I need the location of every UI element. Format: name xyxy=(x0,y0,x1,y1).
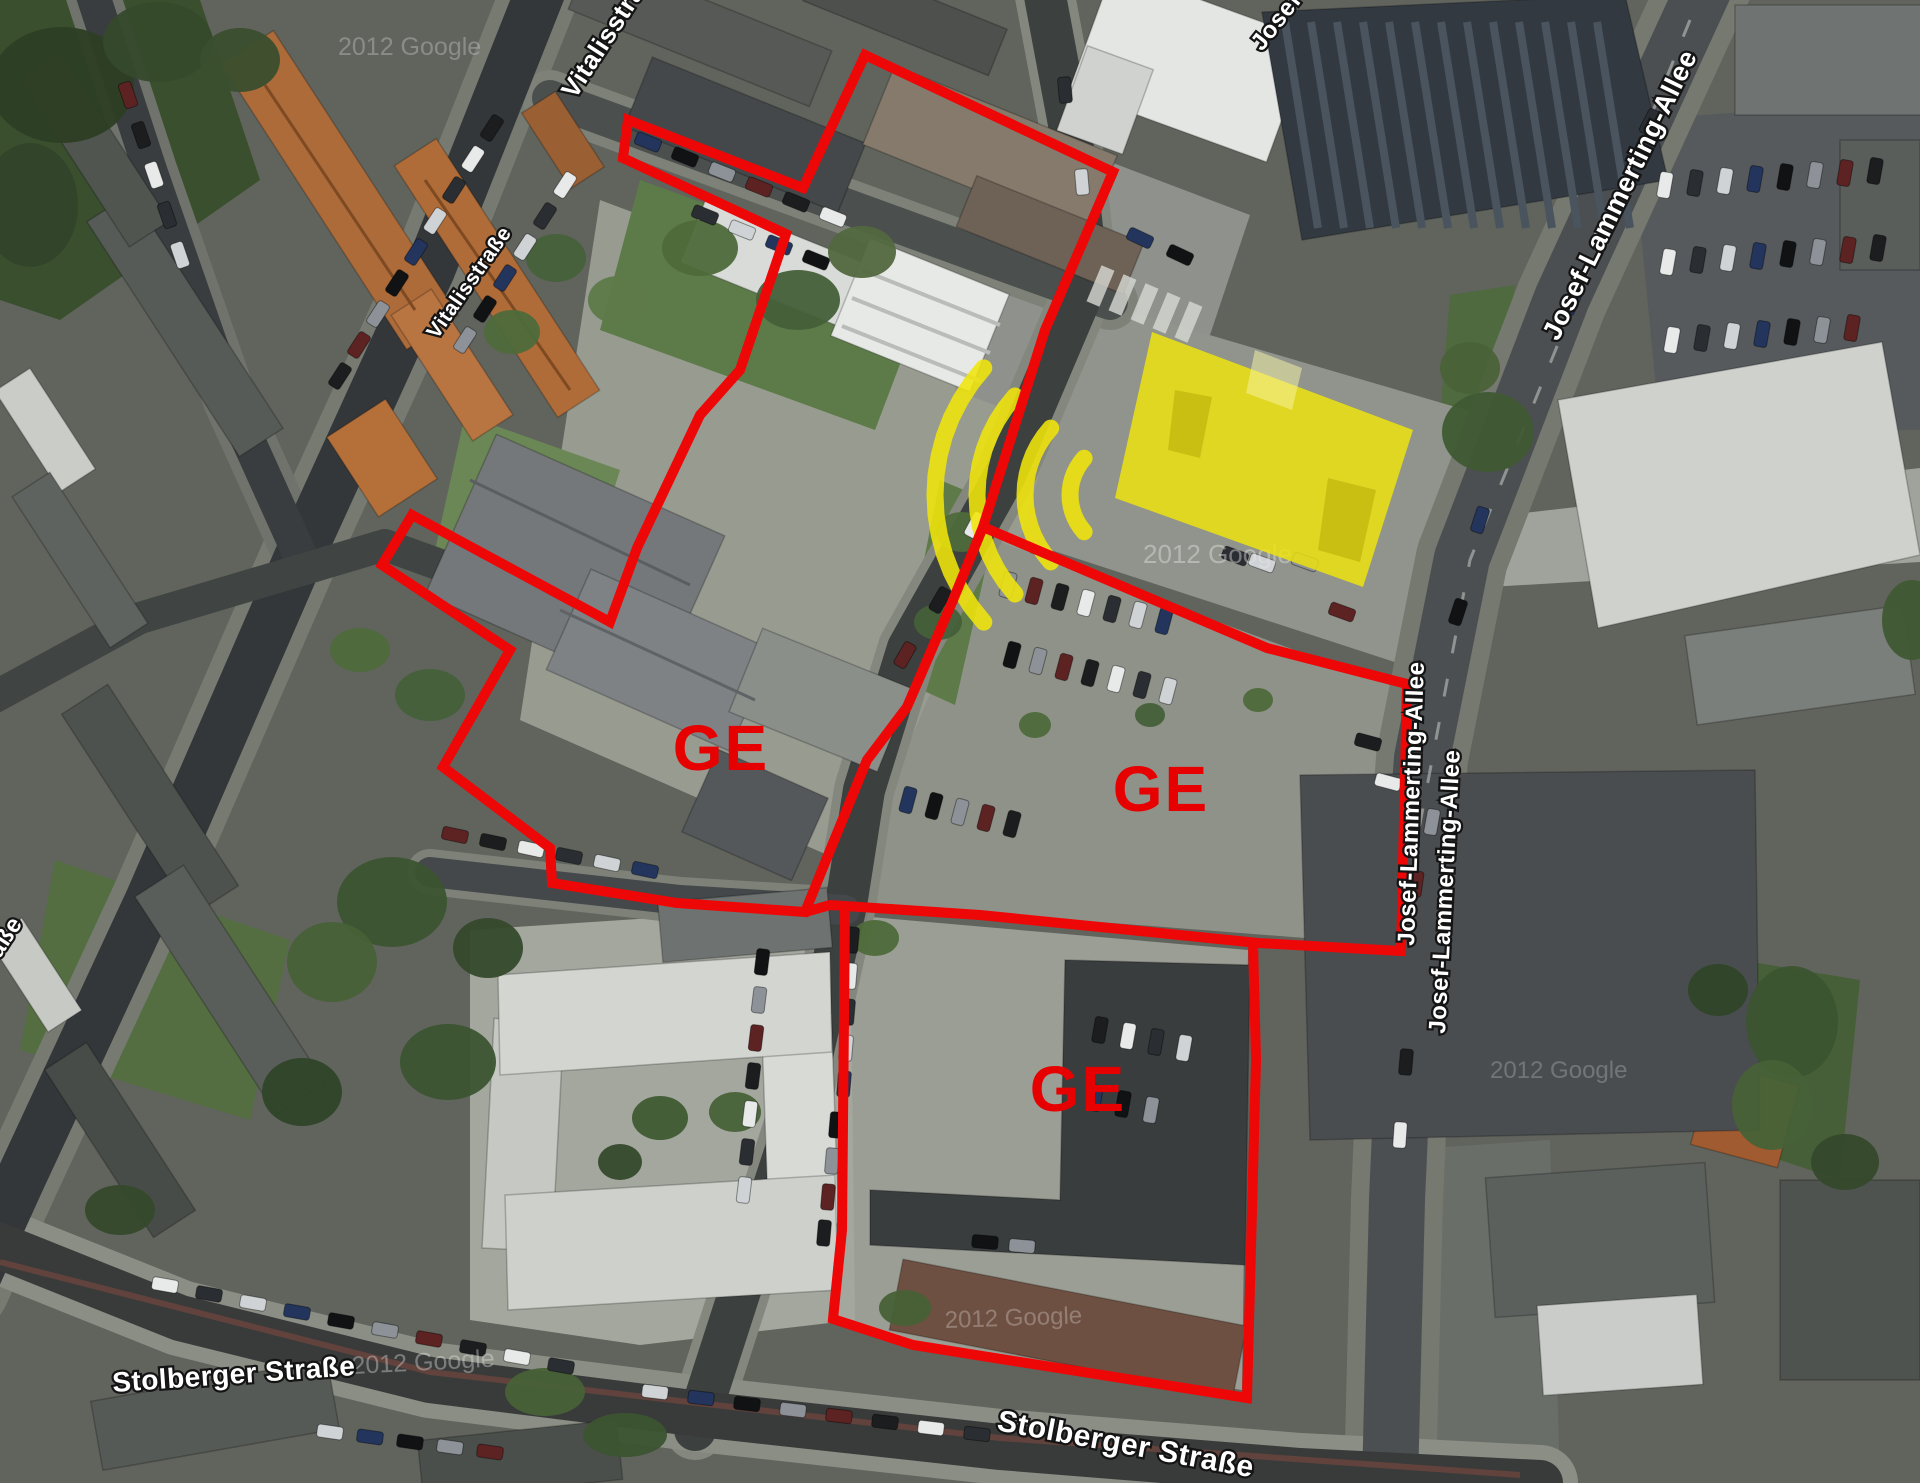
zone-label-ge-south: GE xyxy=(1030,1053,1126,1125)
tree xyxy=(262,1058,342,1126)
car xyxy=(733,1396,760,1412)
car xyxy=(736,1176,752,1203)
tree xyxy=(1243,688,1273,712)
tree xyxy=(1019,712,1051,738)
car xyxy=(820,1183,835,1210)
car xyxy=(917,1420,944,1436)
tree xyxy=(200,28,280,92)
building xyxy=(1780,1180,1920,1380)
tree xyxy=(400,1024,496,1100)
tree xyxy=(1746,966,1838,1078)
car xyxy=(748,1024,764,1051)
tree xyxy=(395,669,465,721)
tree xyxy=(662,220,738,276)
car xyxy=(641,1384,668,1400)
tree xyxy=(879,1290,931,1326)
car xyxy=(816,1219,831,1246)
map-canvas: 2012 Google2012 Google2012 Google2012 Go… xyxy=(0,0,1920,1483)
tree xyxy=(1135,703,1165,727)
car xyxy=(825,1408,852,1424)
tree xyxy=(85,1185,155,1235)
tree xyxy=(103,2,213,82)
tree xyxy=(1442,392,1534,472)
car xyxy=(824,1147,839,1174)
car xyxy=(1074,168,1089,195)
car xyxy=(751,986,767,1013)
tree xyxy=(505,1368,585,1416)
zone-label-ge-west: GE xyxy=(673,712,769,784)
car xyxy=(1008,1238,1035,1253)
car xyxy=(1393,1122,1408,1149)
building xyxy=(1485,1162,1714,1317)
tree xyxy=(1811,1134,1879,1190)
google-watermark: 2012 Google xyxy=(944,1302,1082,1334)
satellite-background xyxy=(0,0,1920,1483)
google-watermark: 2012 Google xyxy=(1490,1057,1627,1084)
tree xyxy=(588,276,648,324)
building xyxy=(505,1175,838,1310)
tree xyxy=(1732,1060,1812,1150)
building xyxy=(1735,5,1920,115)
car xyxy=(739,1138,755,1165)
car xyxy=(754,948,770,975)
tree xyxy=(1440,342,1500,394)
car xyxy=(1398,1048,1413,1075)
tree xyxy=(287,922,377,1002)
car xyxy=(1057,76,1072,103)
tree xyxy=(484,310,540,354)
car xyxy=(963,1426,990,1442)
tree xyxy=(1688,964,1748,1016)
tree xyxy=(583,1413,667,1457)
tree xyxy=(632,1096,688,1140)
car xyxy=(779,1402,806,1418)
building xyxy=(1537,1295,1703,1396)
google-watermark: 2012 Google xyxy=(338,33,481,61)
aerial-map: 2012 Google2012 Google2012 Google2012 Go… xyxy=(0,0,1920,1483)
car xyxy=(971,1234,998,1249)
car xyxy=(871,1414,898,1430)
tree xyxy=(453,918,523,978)
zone-label-ge-center: GE xyxy=(1113,753,1209,825)
building xyxy=(1300,770,1760,1140)
car xyxy=(745,1062,761,1089)
car xyxy=(742,1100,758,1127)
tree xyxy=(330,628,390,672)
tree xyxy=(598,1144,642,1180)
tree xyxy=(828,226,896,278)
car xyxy=(687,1390,714,1406)
